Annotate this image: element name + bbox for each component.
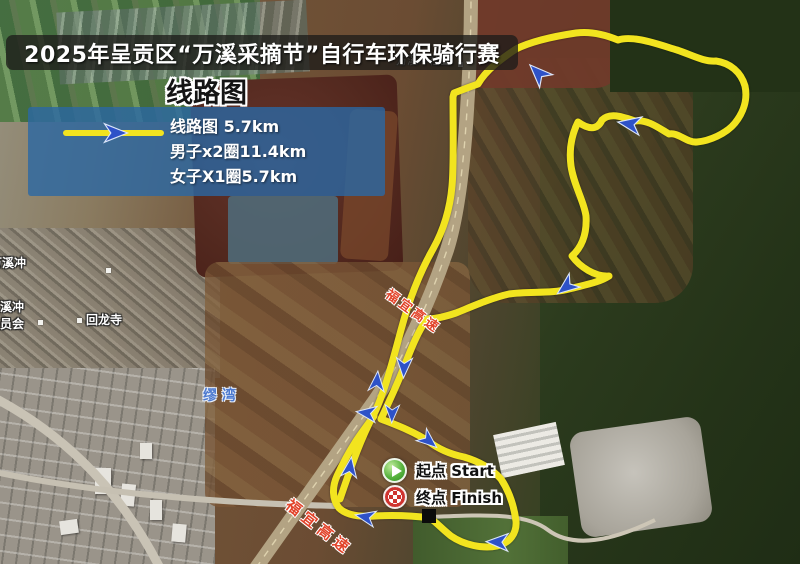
legend-route-label: 线路图 5.7km: [170, 114, 306, 139]
route-map-screenshot: 万溪冲社区 万溪冲 万溪冲 委员会 回龙寺 缪 湾 福宜高速 福宜高速 2025…: [0, 0, 800, 564]
page-title: 2025年呈贡区“万溪采摘节”自行车环保骑行赛: [24, 37, 500, 69]
finish-marker-row: 终点 Finish: [383, 485, 502, 509]
subtitle: 线路图: [166, 71, 247, 110]
play-triangle-icon: [392, 465, 402, 477]
legend-men-label: 男子x2圈11.4km: [170, 139, 306, 164]
legend-box: 线路图 5.7km 男子x2圈11.4km 女子X1圈5.7km: [28, 107, 385, 196]
direction-arrow: [523, 58, 552, 87]
quarry-road: [430, 515, 655, 540]
poi-dot: [77, 318, 82, 323]
direction-arrow: [552, 273, 580, 300]
finish-label: 终点 Finish: [416, 487, 502, 508]
title-bar: 2025年呈贡区“万溪采摘节”自行车环保骑行赛: [6, 35, 518, 70]
label-village-blue: 缪 湾: [203, 385, 236, 405]
label-committee-line2: 委员会: [0, 315, 24, 332]
city-road: [0, 472, 338, 506]
label-temple: 回龙寺: [86, 311, 122, 328]
legend-route-sample: [62, 119, 167, 147]
poi-dot: [38, 320, 43, 325]
city-road: [0, 398, 160, 564]
label-committee-line1: 万溪冲: [0, 298, 24, 315]
finish-line-marker: [422, 509, 436, 523]
label-village-nw: 万溪冲: [0, 254, 26, 271]
legend-women-label: 女子X1圈5.7km: [170, 164, 306, 189]
poi-dot: [106, 268, 111, 273]
start-marker-row: 起点 Start: [382, 458, 494, 483]
start-icon: [382, 458, 407, 483]
legend-texts: 线路图 5.7km 男子x2圈11.4km 女子X1圈5.7km: [170, 114, 306, 189]
finish-icon: [383, 485, 407, 509]
start-label: 起点 Start: [416, 460, 494, 481]
